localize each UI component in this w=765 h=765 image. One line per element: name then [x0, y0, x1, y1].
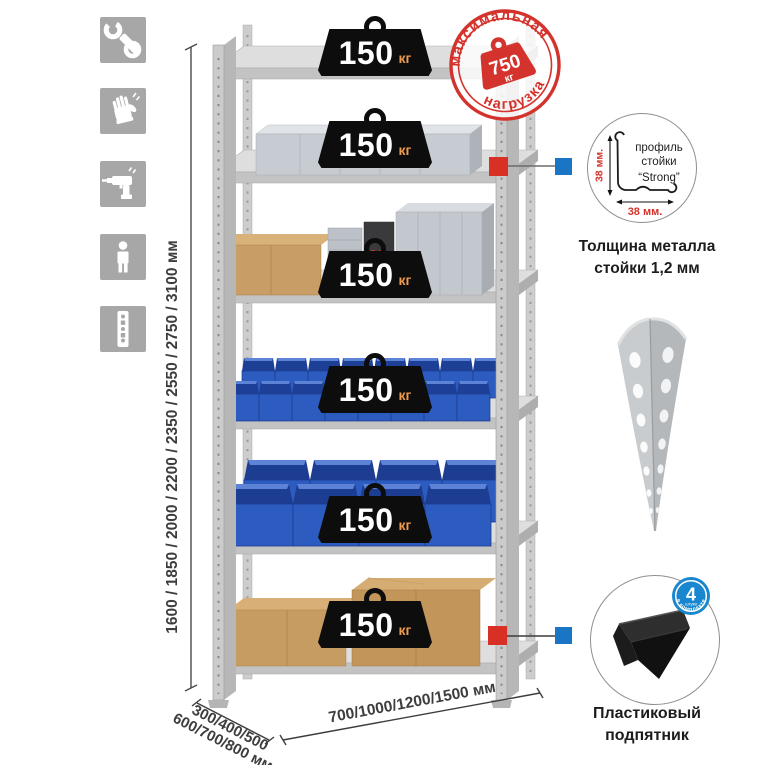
profile-label-1: профиль: [635, 142, 683, 154]
shelf-load-unit: кг: [399, 388, 412, 402]
shelf-load-badge-3: 150кг: [318, 238, 432, 298]
profile-dim-horizontal: 38 мм.: [628, 206, 663, 218]
shelf-load-unit: кг: [399, 143, 412, 157]
shelf-load-unit: кг: [399, 51, 412, 65]
shelf-load-unit: кг: [399, 273, 412, 287]
profile-dim-vertical: 38 мм.: [594, 149, 606, 182]
shelf-load-unit: кг: [399, 518, 412, 532]
plastic-foot-image: [613, 610, 690, 679]
corner-post-image: [600, 305, 700, 535]
shelf-load-value: 150: [339, 504, 394, 536]
height-dimension-label: 1600 / 1850 / 2000 / 2200 / 2350 / 2550 …: [164, 240, 181, 634]
width-dimension-label: 700/1000/1200/1500 мм: [327, 679, 497, 727]
profile-caption: Толщина металла стойки 1,2 мм: [567, 236, 727, 279]
foot-caption: Пластиковый подпятник: [567, 703, 727, 748]
shelf-load-value: 150: [339, 129, 394, 161]
profile-caption-line2: стойки 1,2 мм: [567, 258, 727, 280]
person-icon: [100, 234, 146, 280]
rack-post-icon: [100, 306, 146, 352]
shelf-load-badge-6: 150кг: [318, 588, 432, 648]
shelf-load-badge-2: 150кг: [318, 108, 432, 168]
shelf-load-badge-4: 150кг: [318, 353, 432, 413]
foot-caption-line2: подпятник: [567, 725, 727, 747]
profile-caption-line1: Толщина металла: [567, 236, 727, 258]
shelf-load-badge-5: 150кг: [318, 483, 432, 543]
drill-icon: [100, 161, 146, 207]
quantity-badge-subtext: штуки: [685, 602, 697, 607]
height-dimension: 1600 / 1850 / 2000 / 2200 / 2350 / 2550 …: [164, 44, 197, 691]
gloves-icon: [100, 88, 146, 134]
max-load-stamp: максимальная нагрузка 750 кг: [440, 4, 570, 126]
profile-label-3: “Strong”: [638, 172, 680, 184]
shelf-load-value: 150: [339, 374, 394, 406]
shelf-load-value: 150: [339, 37, 394, 69]
foot-caption-line1: Пластиковый: [567, 703, 727, 725]
quantity-badge: 4 штуки в комплекте: [671, 576, 711, 616]
wrench-icon: [100, 17, 146, 63]
shelf-load-value: 150: [339, 609, 394, 641]
shelf-load-badge-1: 150кг: [318, 16, 432, 76]
shelf-load-unit: кг: [399, 623, 412, 637]
shelf-load-value: 150: [339, 259, 394, 291]
post-profile-detail: 38 мм. 38 мм. профиль стойки “Strong”: [587, 113, 697, 223]
profile-label-2: стойки: [641, 156, 676, 168]
